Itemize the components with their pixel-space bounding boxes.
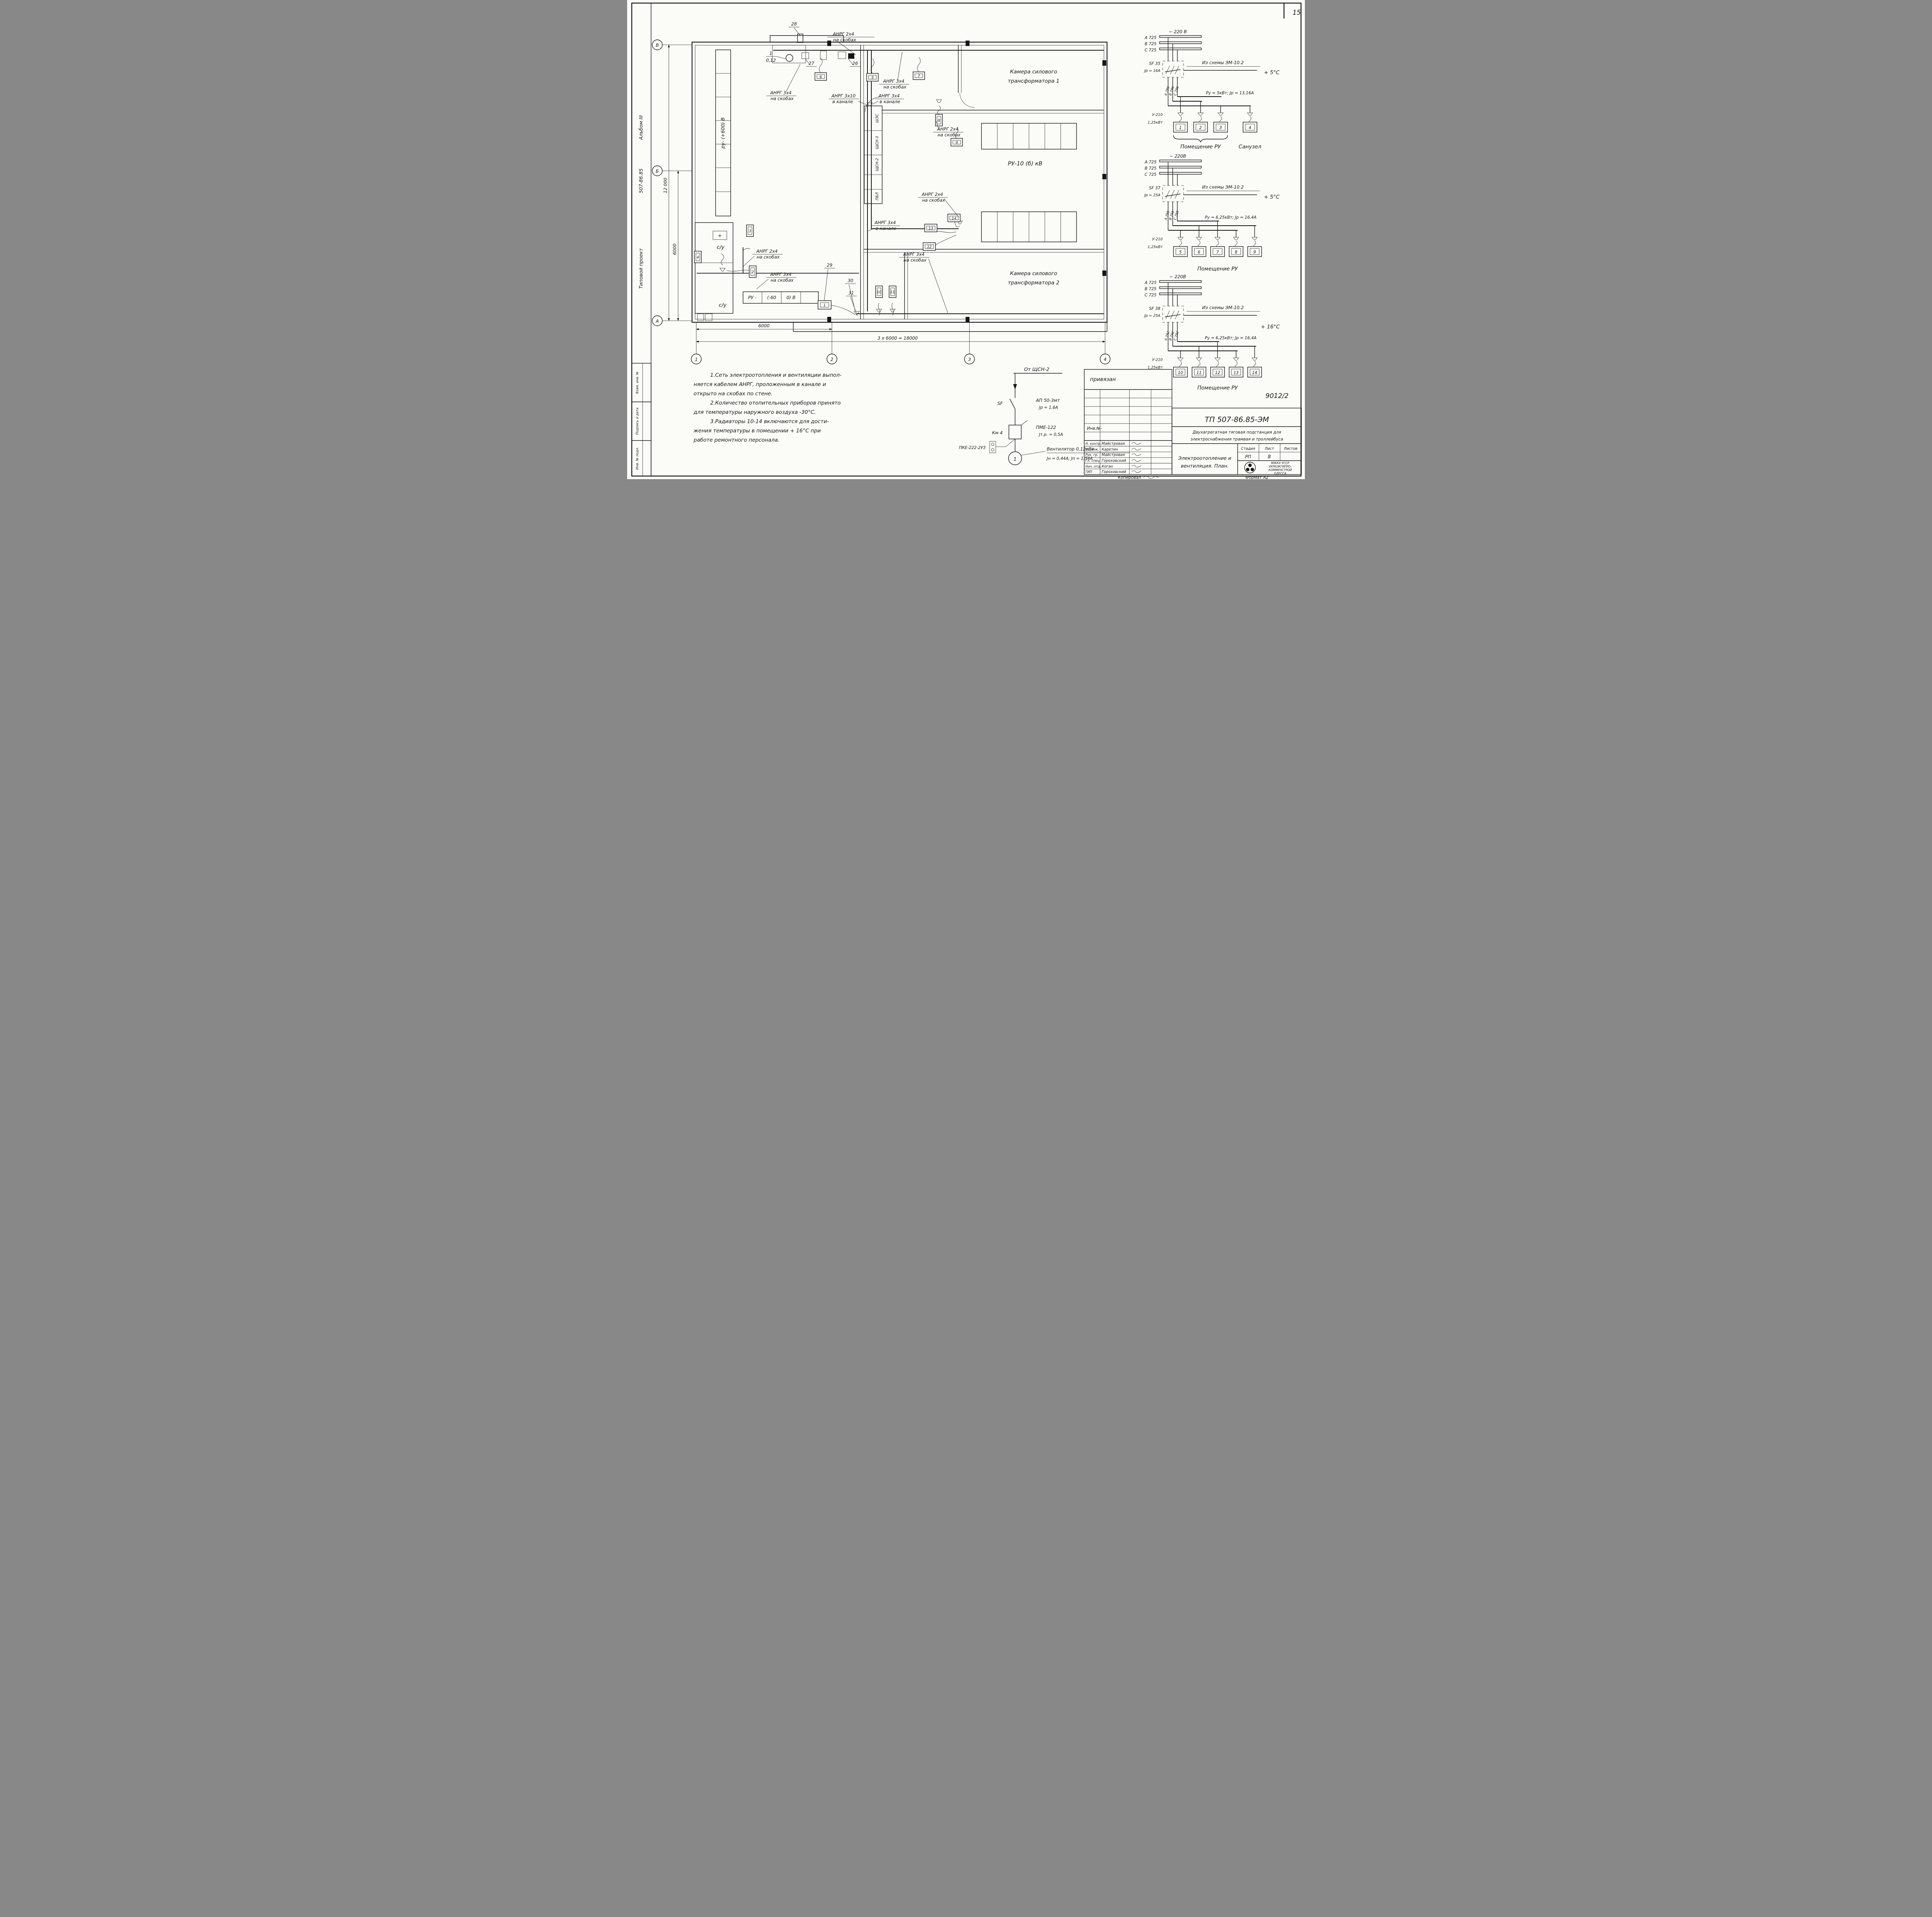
- from-scheme: Из схемы ЭМ-10.2: [1202, 60, 1244, 65]
- voltage-label: ~ 220 В: [1169, 29, 1187, 34]
- dim-6000-h: 6000: [758, 323, 769, 328]
- svg-text:28: 28: [791, 21, 797, 27]
- plan-heater-2: 2: [749, 266, 756, 277]
- svg-text:1.Сеть электроотопления и вент: 1.Сеть электроотопления и вентиляции вып…: [710, 372, 842, 378]
- svg-text:10: 10: [877, 290, 881, 294]
- col-axis-1: 1: [691, 354, 701, 364]
- cable-label-3x4-channel-top: АНРГ 3х4 в канале: [872, 93, 904, 104]
- breaker-tag: SF 35: [1149, 61, 1161, 66]
- project-type-label: Типовой проект: [638, 248, 644, 289]
- drawing-subtitle-line1: Электроотопление и: [1178, 455, 1231, 461]
- col-axis-4: 4: [1100, 354, 1110, 364]
- ru10-cell-row-bottom: [981, 212, 1077, 242]
- svg-text:в канале: в канале: [832, 99, 853, 104]
- plan-heater-4: 4: [694, 251, 701, 263]
- plan-heater-11: 11: [889, 286, 896, 298]
- svg-text:3: 3: [968, 357, 971, 362]
- svg-text:1,25кВт: 1,25кВт: [1148, 245, 1163, 249]
- svg-text:на скобах: на скобах: [903, 257, 927, 263]
- doc-title-line2: электроснабжения трамвая и троллейбуса: [1190, 437, 1283, 442]
- dim-12000: 12 000: [663, 178, 668, 193]
- svg-text:В 725: В 725: [1145, 287, 1156, 291]
- svg-text:АНРГ 2х4: АНРГ 2х4: [833, 31, 854, 37]
- svg-text:на скобах: на скобах: [757, 254, 780, 260]
- panel-plus600-label: ру- (+600) В: [720, 117, 726, 149]
- svg-text:для температуры наружного возд: для температуры наружного воздуха -30°С.: [693, 409, 816, 415]
- svg-text:работе ремонтного персонала.: работе ремонтного персонала.: [693, 437, 779, 443]
- room-trans1-line1: Камера силового: [1010, 69, 1057, 75]
- svg-text:Ру = 6,25кВт; Jр = 16,4А: Ру = 6,25кВт; Jр = 16,4А: [1205, 215, 1257, 220]
- org-logo: [1245, 462, 1255, 473]
- svg-text:9: 9: [1253, 250, 1256, 255]
- svg-text:26: 26: [852, 61, 858, 66]
- room-ru10: РУ-10 (б) кВ: [1008, 161, 1042, 167]
- svg-text:4: 4: [697, 255, 699, 260]
- cable-label-3x10-channel: АНРГ 3х10 в канале: [829, 93, 867, 105]
- org-line1: МЖКХ УССР: [1271, 461, 1289, 465]
- dim-6000-v: 6000: [672, 243, 677, 255]
- cable-label-bottom-3x4: АНРГ 3х4 на скобах: [899, 252, 948, 313]
- circuit-diagram-1: ~ 220 В А 725 В 725 С 725 SF 35 Jр = 16А…: [1144, 29, 1280, 150]
- battery-plus: +: [718, 233, 722, 238]
- svg-text:няется кабелем АНРГ, проложенн: няется кабелем АНРГ, проложенным в канал…: [694, 381, 826, 388]
- callout-27: 27: [806, 60, 817, 66]
- svg-text:0,12: 0,12: [766, 58, 776, 63]
- svg-text:АНРГ 3х4: АНРГ 3х4: [770, 90, 792, 95]
- svg-text:Коган: Коган: [1102, 464, 1113, 469]
- panel-schn3: ЩСН-3: [875, 136, 879, 149]
- svg-text:Каретин: Каретин: [1102, 447, 1118, 452]
- svg-text:на скобах: на скобах: [770, 277, 794, 283]
- svg-text:6: 6: [1198, 250, 1201, 255]
- svg-text:У-210: У-210: [1152, 237, 1163, 242]
- svg-text:7: 7: [918, 74, 920, 78]
- svg-text:Гл. спец.: Гл. спец.: [1085, 459, 1101, 463]
- button-type: ПКЕ-222-2У3: [959, 446, 986, 450]
- svg-text:Майстровая: Майстровая: [1102, 453, 1125, 457]
- svg-text:Рук. гр.: Рук. гр.: [1085, 453, 1098, 457]
- breaker-type: АП 50-3мт: [1036, 398, 1060, 403]
- document-number: ТП 507-86.85-ЭМ: [1205, 415, 1269, 424]
- svg-text:1: 1: [1179, 126, 1182, 130]
- breaker-current: Jр = 1,6А: [1038, 405, 1058, 410]
- row-axis-A: А: [652, 316, 692, 326]
- temp-label: + 5°С: [1264, 70, 1280, 76]
- fan-number: 1: [1014, 456, 1017, 462]
- row-axis-V: В: [652, 40, 692, 50]
- svg-text:1: 1: [695, 357, 697, 362]
- notes-block: 1.Сеть электроотопления и вентиляции вып…: [693, 372, 842, 443]
- svg-text:2: 2: [752, 270, 754, 274]
- album-label: Альбом III: [638, 115, 644, 140]
- callout-28: 28: [789, 21, 800, 36]
- org-line3: КОММУНСТРОЙ: [1269, 468, 1292, 472]
- svg-text:АНРГ 3х4: АНРГ 3х4: [770, 272, 792, 277]
- power-label: Ру = 5кВт; Jр = 13,16А: [1206, 91, 1254, 95]
- cable-label-left-3x4: АНРГ 3х4 на скобах: [766, 64, 800, 101]
- unit-power: 1,25кВт: [1148, 121, 1163, 125]
- room-su-1: с/у: [717, 244, 725, 250]
- col-axis-2: 2: [827, 354, 837, 364]
- drawing-subtitle-line2: вентиляция. План.: [1181, 463, 1228, 469]
- callout-31: 31: [846, 290, 857, 316]
- drawing-sheet: 15 Альбом III 507-86.85 Типовой проект В…: [627, 0, 1305, 479]
- svg-text:Помещение РУ: Помещение РУ: [1197, 266, 1238, 272]
- plan-heater-1: 1: [818, 301, 831, 309]
- plan-heater-14: 14: [948, 214, 960, 222]
- svg-text:~ 220В: ~ 220В: [1169, 153, 1186, 159]
- svg-text:В 725: В 725: [1145, 166, 1156, 171]
- strip-cell-podpis: Подпись и дата: [636, 408, 639, 435]
- callout-29: 29: [824, 262, 835, 301]
- svg-text:открыто на скобах по стене.: открыто на скобах по стене.: [694, 391, 772, 397]
- svg-text:на скобах: на скобах: [937, 132, 961, 138]
- svg-text:29: 29: [827, 262, 833, 268]
- room-trans1-line2: трансформатора 1: [1008, 78, 1060, 84]
- title-block: привязан Инв.№- Н. контр.Майстровая Ст.и…: [1084, 369, 1301, 475]
- room-label-ru: Помещение РУ: [1180, 144, 1221, 150]
- svg-text:в канале: в канале: [876, 226, 896, 231]
- svg-text:С 725: С 725: [1145, 293, 1156, 298]
- svg-text:SF 37: SF 37: [1149, 186, 1161, 191]
- svg-text:Из схемы ЭМ-10.2: Из схемы ЭМ-10.2: [1202, 184, 1244, 190]
- outlet-type: У-210: [1152, 113, 1163, 117]
- svg-text:13: 13: [929, 226, 933, 231]
- circuit1-heaters: 1 2 3 4: [1173, 122, 1257, 132]
- org-line4: ОДЕССА: [1274, 472, 1286, 475]
- svg-text:АНРГ 2х4: АНРГ 2х4: [922, 192, 943, 197]
- plan-heater-9: 9: [951, 138, 963, 146]
- contactor-tag: Км 4: [992, 430, 1003, 435]
- svg-text:Гороховский: Гороховский: [1102, 470, 1126, 474]
- svg-text:~ 220В: ~ 220В: [1169, 274, 1186, 279]
- plan-heater-8: 8: [935, 114, 942, 126]
- svg-text:3: 3: [1219, 126, 1222, 130]
- copied-by-label: Копировал: [1118, 475, 1141, 479]
- project-number-label: 507-86.85: [638, 168, 644, 193]
- svg-text:6: 6: [820, 75, 822, 79]
- callout-fan: 1 0,12: [766, 51, 786, 63]
- stage-header: Стадия: [1241, 447, 1255, 451]
- svg-text:АНРГ 3х4: АНРГ 3х4: [874, 220, 896, 225]
- svg-text:11: 11: [1196, 371, 1201, 375]
- org-line2: УКРЮЖГИПРО-: [1269, 465, 1291, 468]
- axes-and-dimensions: В Б А 12 000 6000 6000 3 х 6000 = 18000 …: [652, 40, 1110, 364]
- plan-heater-12: 12: [923, 243, 935, 250]
- svg-text:Нач. отд.: Нач. отд.: [1085, 465, 1101, 469]
- cable-label-2x4-center-lower: АНРГ 2х4 на скобах: [918, 192, 959, 217]
- svg-text:5: 5: [1179, 250, 1182, 255]
- svg-text:1: 1: [823, 303, 826, 308]
- outlet-bells: [719, 100, 963, 315]
- svg-text:14: 14: [952, 216, 956, 221]
- cable-label-su-2x4: АНРГ 2х4 на скобах: [743, 248, 782, 267]
- svg-text:2: 2: [830, 357, 833, 362]
- svg-text:13: 13: [1233, 371, 1238, 375]
- svg-text:Из схемы ЭМ-10.2: Из схемы ЭМ-10.2: [1202, 305, 1244, 310]
- svg-text:8: 8: [938, 119, 940, 123]
- svg-text:АНРГ 3х4: АНРГ 3х4: [878, 93, 900, 99]
- plan-heater-10: 10: [876, 286, 883, 298]
- svg-text:А 725: А 725: [1144, 281, 1156, 285]
- svg-text:9: 9: [956, 141, 958, 145]
- svg-text:1: 1: [769, 51, 772, 56]
- room-label-sanuzel: Санузел: [1239, 144, 1262, 150]
- svg-text:11: 11: [890, 290, 895, 294]
- sheet-number: 15: [1293, 9, 1301, 17]
- svg-text:+ 5°С: + 5°С: [1264, 194, 1280, 200]
- svg-text:Гороховский: Гороховский: [1102, 459, 1126, 463]
- cable-labels: АНРГ 2х4 на скобах АНРГ 3х4 на скобах АН…: [743, 31, 963, 313]
- room-trans2-line1: Камера силового: [1010, 270, 1057, 277]
- svg-text:Jр = 25А: Jр = 25А: [1144, 314, 1160, 318]
- su-rooms: [695, 223, 733, 321]
- dim-18000: 3 х 6000 = 18000: [878, 335, 918, 341]
- starter-type: ПМЕ-122: [1036, 425, 1056, 430]
- svg-text:4: 4: [1104, 357, 1106, 362]
- panel-minus600-c3: 0) В: [786, 295, 795, 300]
- svg-text:30: 30: [848, 278, 854, 283]
- plan-heater-6: 6: [815, 73, 827, 80]
- strip-cell-vzam: Взам. инв. №: [636, 371, 639, 394]
- panel-schn2: ЩСН-2: [875, 158, 879, 171]
- svg-text:Помещение РУ: Помещение РУ: [1197, 385, 1238, 391]
- svg-text:31: 31: [849, 290, 854, 296]
- svg-text:АНРГ 2х4: АНРГ 2х4: [756, 248, 778, 254]
- room-trans2-line2: трансформатора 2: [1008, 280, 1060, 286]
- paper-format-label: Формат А2: [1245, 475, 1269, 479]
- plan-labels: Камера силового трансформатора 1 РУ-10 (…: [717, 69, 1060, 308]
- svg-text:В 725: В 725: [1145, 42, 1156, 46]
- callout-26: 26: [848, 59, 861, 66]
- switch-tag: SF: [997, 401, 1003, 406]
- svg-text:В: В: [656, 43, 659, 48]
- svg-text:С 725: С 725: [1145, 172, 1156, 177]
- doc-title-line1: Двухагрегатная тяговая подстанция для: [1192, 430, 1281, 435]
- svg-text:АНРГ 3х10: АНРГ 3х10: [831, 93, 855, 99]
- svg-text:2: 2: [1199, 126, 1202, 130]
- svg-text:С 725: С 725: [1145, 48, 1156, 53]
- svg-text:на скобах: на скобах: [922, 197, 945, 203]
- plan-heater-7: 7: [913, 72, 925, 80]
- sheet-value: 8: [1268, 454, 1271, 459]
- svg-text:Ст.инж.: Ст.инж.: [1085, 448, 1099, 452]
- circuit-diagram-3: ~ 220В А 725 В 725 С 725 SF 38 Jр = 25А …: [1144, 274, 1280, 391]
- svg-text:5: 5: [871, 76, 874, 80]
- panel-minus600-c2: (-60: [767, 295, 776, 300]
- svg-text:27: 27: [809, 61, 815, 66]
- strip-cell-inv: Инв. № подл.: [636, 447, 639, 470]
- svg-text:ГИП: ГИП: [1085, 470, 1092, 474]
- svg-text:12: 12: [1215, 371, 1220, 375]
- svg-text:Н. контр.: Н. контр.: [1085, 442, 1101, 446]
- svg-text:3.Радиаторы 10-14 включаются д: 3.Радиаторы 10-14 включаются для дости-: [710, 418, 829, 425]
- circuit2-heaters: 5 6 7 8 9: [1173, 247, 1262, 257]
- svg-text:2.Количество отопительных приб: 2.Количество отопительных приборов приня…: [710, 400, 841, 406]
- plan-heaters: 1 2 3 4 5 6 7 8 9 10 11 12 13 14: [694, 72, 963, 309]
- stage-value: РП: [1245, 454, 1251, 459]
- svg-text:8: 8: [1235, 250, 1238, 255]
- svg-text:14: 14: [1252, 371, 1257, 375]
- plan-heater-13: 13: [925, 224, 937, 232]
- svg-text:АНРГ 2х4: АНРГ 2х4: [937, 126, 959, 132]
- room-su-2: с/у: [719, 302, 727, 308]
- svg-text:на скобах: на скобах: [883, 84, 906, 90]
- svg-text:SF 38: SF 38: [1149, 306, 1161, 311]
- panel-minus600-c1: РУ -: [748, 295, 757, 300]
- svg-text:3: 3: [749, 229, 751, 233]
- cable-label-right-3x4: АНРГ 3х4 на скобах: [879, 52, 909, 90]
- panel-pbl: ПБЛ: [875, 192, 879, 201]
- svg-text:на скобах: на скобах: [770, 96, 794, 101]
- sheets-header: Листов: [1283, 447, 1298, 451]
- starter-current: Jт.р. = 0,5А: [1038, 432, 1063, 437]
- feed-label: От ЩСН-2: [1024, 366, 1049, 372]
- svg-text:А: А: [655, 318, 659, 324]
- handwritten-ref: 9012/2: [1265, 392, 1289, 400]
- svg-text:АНРГ 3х4: АНРГ 3х4: [883, 78, 905, 84]
- svg-text:7: 7: [1216, 250, 1219, 255]
- svg-text:Ру = 6,25кВт; Jр = 16,4А: Ру = 6,25кВт; Jр = 16,4А: [1205, 336, 1257, 340]
- sheet-header: Лист: [1264, 447, 1274, 451]
- panel-column-schn: [864, 106, 882, 204]
- svg-text:Майстровая: Майстровая: [1102, 442, 1125, 446]
- svg-text:Jр = 25А: Jр = 25А: [1144, 193, 1160, 197]
- svg-text:жения температуры в помещении: жения температуры в помещении + 16°С при: [693, 428, 821, 434]
- cable-label-su-3x4: АНРГ 3х4 на скобах: [757, 272, 796, 289]
- plan-heater-3: 3: [747, 225, 753, 236]
- inventory-number: Инв.№-: [1087, 426, 1102, 431]
- svg-text:+ 16°С: + 16°С: [1261, 324, 1280, 330]
- svg-text:в канале: в канале: [879, 99, 900, 104]
- svg-text:12: 12: [927, 245, 932, 249]
- panel-shzs: ШЗС: [875, 114, 879, 122]
- svg-text:У-210: У-210: [1152, 358, 1163, 362]
- cable-label-3x4-channel-mid: АНРГ 3х4 в канале: [868, 220, 900, 231]
- col-axis-3: 3: [964, 354, 975, 364]
- svg-text:А 725: А 725: [1144, 160, 1156, 165]
- svg-text:АНРГ 3х4: АНРГ 3х4: [903, 252, 925, 257]
- plan-heater-5: 5: [867, 73, 878, 81]
- circuit-diagram-2: ~ 220В А 725 В 725 С 725 SF 37 Jр = 25А …: [1144, 153, 1280, 272]
- svg-text:А 725: А 725: [1144, 36, 1156, 40]
- svg-text:на скобах: на скобах: [833, 37, 856, 43]
- svg-text:Б: Б: [656, 168, 659, 174]
- left-strip: Альбом III 507-86.85 Типовой проект Взам…: [632, 115, 651, 476]
- ru10-cell-row-top: [981, 123, 1077, 149]
- attached-note: привязан: [1090, 376, 1116, 383]
- svg-text:4: 4: [1249, 126, 1252, 130]
- row-axis-B: Б: [652, 166, 692, 176]
- circuit3-heaters: 10 11 12 13 14: [1173, 367, 1262, 377]
- breaker-current: Jр = 16А: [1144, 69, 1160, 73]
- svg-text:10: 10: [1178, 371, 1183, 375]
